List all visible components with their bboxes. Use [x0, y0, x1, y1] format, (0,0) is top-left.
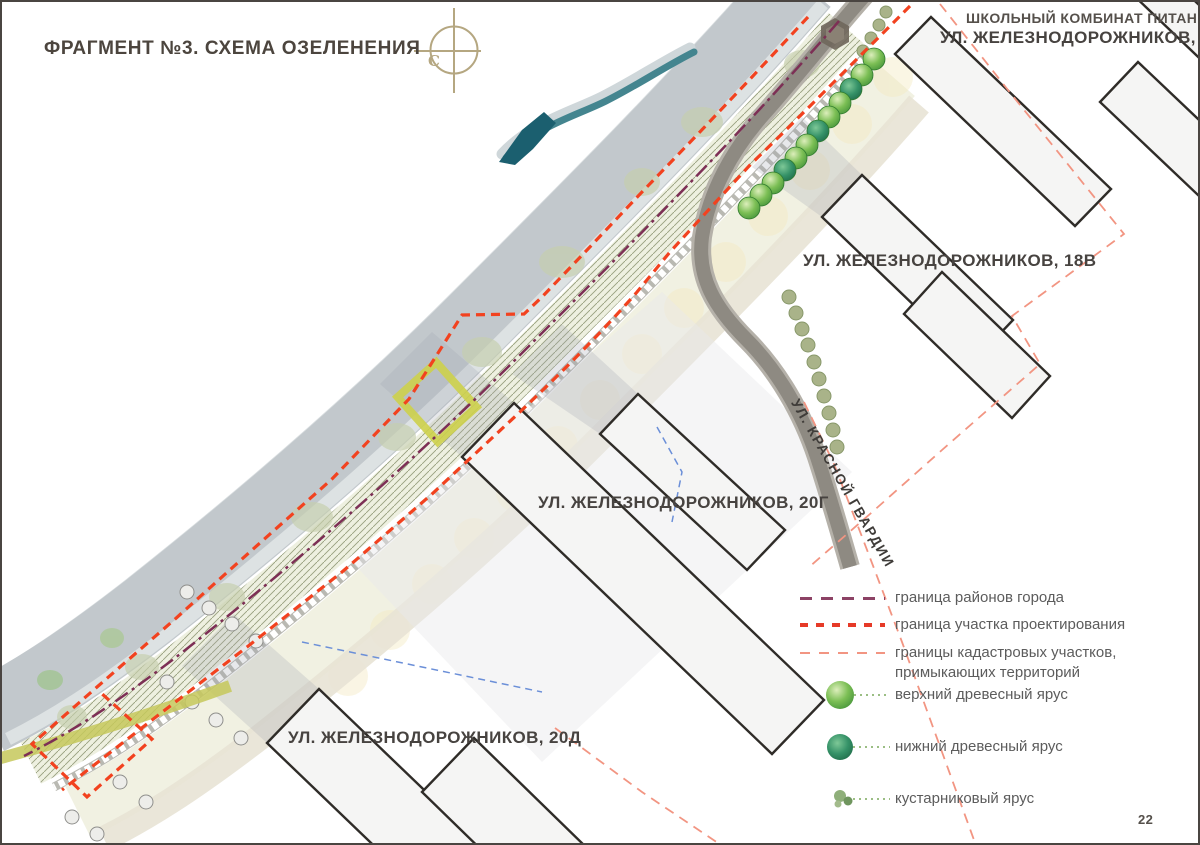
legend-item-label: кустарниковый ярус	[895, 789, 1034, 809]
upper-tree-icon	[800, 678, 895, 712]
legend-item-label: граница районов города	[895, 588, 1064, 608]
sandbar-dark-water	[499, 112, 556, 165]
label-building-20g: УЛ. ЖЕЛЕЗНОДОРОЖНИКОВ, 20Г	[538, 493, 829, 513]
project-boundary-swatch	[800, 623, 895, 627]
legend-item-project-boundary: граница участка проектирования	[800, 615, 1125, 635]
site-plan-map: С	[2, 2, 1200, 845]
label-building-18a: УЛ. ЖЕЛЕЗНОДОРОЖНИКОВ, 18А	[940, 28, 1200, 48]
shrub-icon	[800, 782, 895, 816]
legend-item-lower-tree-layer: нижний древесный ярус	[800, 730, 1063, 764]
cadastral-boundary-swatch	[800, 652, 895, 654]
label-building-18v: УЛ. ЖЕЛЕЗНОДОРОЖНИКОВ, 18В	[803, 251, 1096, 271]
lower-tree-icon	[800, 730, 895, 764]
label-building-20d: УЛ. ЖЕЛЕЗНОДОРОЖНИКОВ, 20Д	[288, 728, 581, 748]
plan-sheet: С ФРАГМЕНТ №3. СХЕМА ОЗЕЛЕНЕНИЯ ШКОЛЬНЫЙ…	[0, 0, 1200, 845]
north-compass-icon: С	[414, 8, 481, 93]
label-school-kombinat: ШКОЛЬНЫЙ КОМБИНАТ ПИТАНИЯ	[966, 10, 1200, 26]
legend-item-district-boundary: граница районов города	[800, 588, 1064, 608]
legend-item-cadastral-boundary: границы кадастровых участков, примыкающи…	[800, 643, 1116, 683]
building-footprint-18a	[895, 17, 1111, 226]
building-footprint-18a-east	[1100, 62, 1200, 214]
legend-item-label: границы кадастровых участков, примыкающи…	[895, 643, 1116, 683]
legend-item-upper-tree-layer: верхний древесный ярус	[800, 678, 1068, 712]
legend-item-label: нижний древесный ярус	[895, 737, 1063, 757]
compass-north-letter: С	[428, 52, 440, 70]
legend-item-label: граница участка проектирования	[895, 615, 1125, 635]
district-boundary-swatch	[800, 597, 895, 600]
legend-item-shrub-layer: кустарниковый ярус	[800, 782, 1034, 816]
page-number: 22	[1138, 812, 1153, 827]
page-title: ФРАГМЕНТ №3. СХЕМА ОЗЕЛЕНЕНИЯ	[44, 38, 420, 60]
legend-item-label: верхний древесный ярус	[895, 685, 1068, 705]
